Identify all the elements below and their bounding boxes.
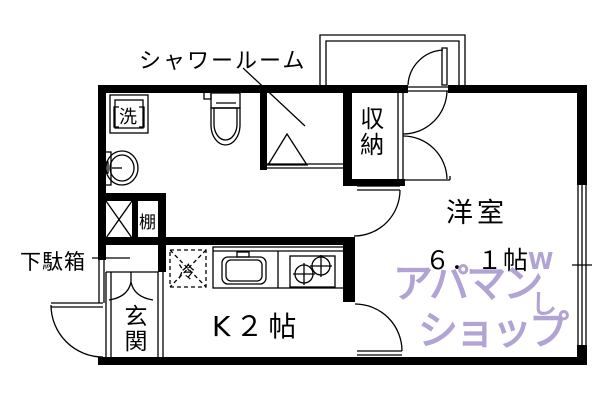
balcony-door-arc (408, 50, 443, 85)
kitchen-label: K２帖 (212, 305, 301, 345)
wall-top-right (448, 85, 585, 93)
western-room-label: 洋室 (446, 191, 508, 230)
shower-room-label: シャワールーム (139, 43, 306, 75)
closet-door-arc-upper (403, 91, 447, 134)
balcony-door-leaf (442, 48, 447, 85)
balcony-outline-inner (326, 41, 459, 85)
entrance-label: 玄関 (116, 304, 150, 354)
shower-triangle-icon (268, 134, 307, 165)
shelf-label: 棚 (139, 208, 156, 233)
faucet-icon (237, 252, 249, 257)
wall-vert-small (158, 193, 166, 272)
front-door-leaf (51, 303, 103, 307)
wall-right-upper (577, 85, 587, 185)
closet-label: 収納 (355, 106, 383, 158)
front-door-arc (51, 305, 103, 357)
shoe-cabinet-label: 下駄箱 (20, 246, 86, 276)
wall-bottom (98, 357, 587, 365)
toilet-handle (204, 92, 211, 99)
fridge-label: 冷 (178, 258, 195, 283)
upper-door-leaf (357, 186, 400, 190)
washer-label: 洗 (119, 103, 137, 129)
lower-door-leaf (357, 351, 402, 355)
toilet-bowl-inner (214, 108, 237, 140)
balcony-door-sill (408, 87, 448, 91)
wall-box-divider (132, 200, 138, 238)
shower-leader-line (243, 68, 305, 126)
lower-door-arc (355, 304, 402, 351)
wall-shower-left (260, 93, 267, 170)
sink-inner (226, 260, 262, 281)
toilet-tank (211, 93, 240, 108)
wall-kitchen-top (98, 237, 355, 245)
closet-door-leaf (398, 90, 403, 180)
entrance-right-partition (158, 272, 163, 357)
wall-wash-bottom (98, 193, 166, 201)
left-wall-thin (99, 260, 104, 303)
kitchen-counter (213, 247, 345, 288)
balcony-outline (320, 35, 465, 85)
upper-door-arc (354, 190, 400, 236)
wall-closet-left (343, 93, 352, 186)
watermark-mark-w: W (528, 249, 553, 275)
shaft-x-icon (106, 201, 132, 238)
wall-closet-bottom (343, 179, 405, 186)
closet-frame-line (405, 176, 450, 180)
floorplan-page: シャワールーム 収納 洋室 ６．１帖 下駄箱 玄関 K２帖 洗 冷 棚 アパマン… (0, 0, 600, 400)
closet-door-arc-lower (403, 136, 447, 179)
wall-top-left (98, 85, 408, 93)
watermark-mark-l: し (531, 284, 557, 321)
entrance-left-partition (106, 272, 111, 357)
shoe-cabinet-door-arcs (109, 282, 153, 300)
